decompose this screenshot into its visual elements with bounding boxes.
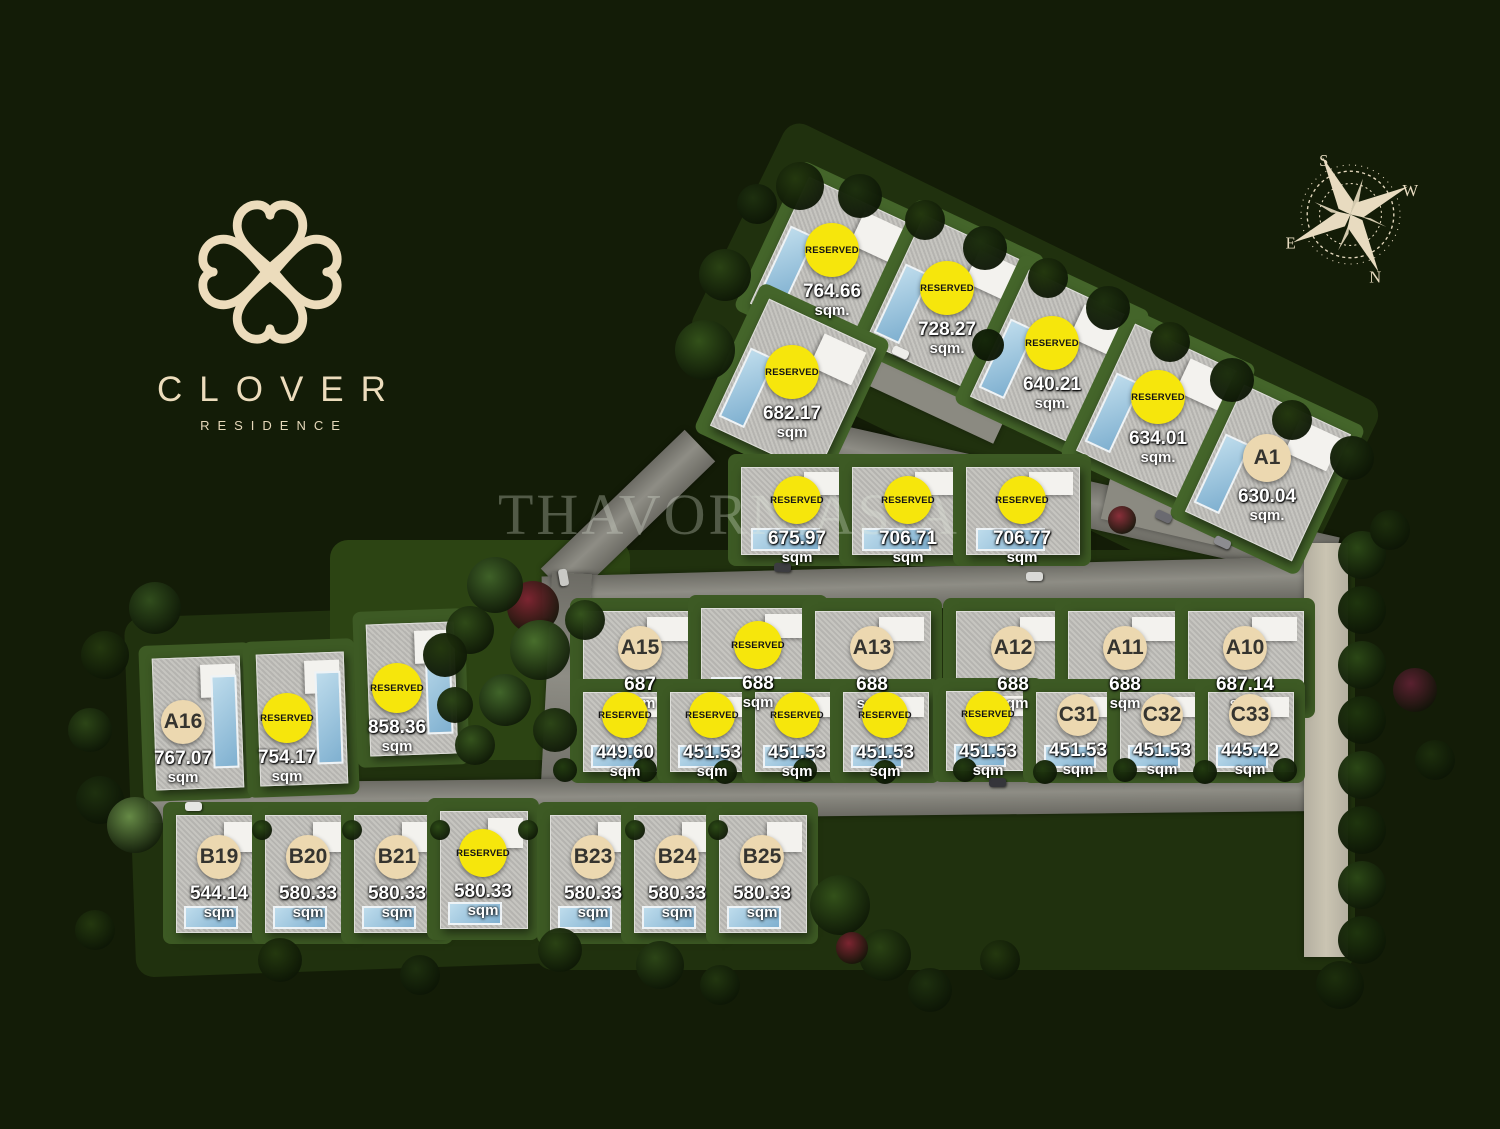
unit-badge: C32 — [1141, 694, 1183, 736]
unit-area-unit: sqm — [468, 902, 499, 919]
unit-marker-b23: B23580.33sqm — [564, 835, 622, 921]
unit-marker-b19: B19544.14sqm — [190, 835, 248, 921]
reserved-badge: RESERVED — [1131, 370, 1185, 424]
unit-area-unit: sqm — [578, 904, 609, 921]
unit-marker-b20: B20580.33sqm — [279, 835, 337, 921]
unit-marker-a16: A16767.07sqm — [154, 700, 212, 786]
unit-area: 449.60 — [596, 743, 654, 763]
unit-area-unit: sqm. — [1249, 507, 1284, 524]
logo: CLOVER RESIDENCE — [140, 192, 400, 433]
unit-badge: B19 — [197, 835, 241, 879]
unit-area: 688 — [742, 674, 774, 694]
unit-area-unit: sqm — [747, 904, 778, 921]
unit-area: 706.71 — [879, 529, 937, 549]
unit-marker-reserved-25: RESERVED858.36sqm — [368, 663, 426, 755]
unit-badge: B24 — [655, 835, 699, 879]
unit-area-unit: sqm — [293, 904, 324, 921]
unit-marker-reserved-3: RESERVED640.21sqm. — [1023, 316, 1081, 412]
reserved-badge: RESERVED — [262, 693, 312, 743]
unit-badge: A10 — [1223, 626, 1267, 670]
reserved-badge: RESERVED — [998, 476, 1046, 524]
unit-badge: A1 — [1243, 434, 1291, 482]
unit-marker-reserved-1: RESERVED728.27sqm. — [918, 261, 976, 357]
unit-marker-reserved-7: RESERVED706.71sqm — [879, 476, 937, 566]
unit-area-unit: sqm — [870, 763, 901, 780]
reserved-badge: RESERVED — [372, 663, 422, 713]
unit-area: 764.66 — [803, 282, 861, 302]
reserved-badge: RESERVED — [734, 621, 782, 669]
unit-area: 682.17 — [763, 404, 821, 424]
reserved-badge: RESERVED — [774, 692, 820, 738]
reserved-badge: RESERVED — [862, 692, 908, 738]
unit-area: 728.27 — [918, 320, 976, 340]
unit-marker-c31: C31451.53sqm — [1049, 694, 1107, 778]
unit-area: 580.33 — [454, 882, 512, 902]
unit-area-unit: sqm — [893, 549, 924, 566]
reserved-badge: RESERVED — [965, 691, 1011, 737]
unit-area-unit: sqm. — [814, 302, 849, 319]
unit-area: 451.53 — [1049, 741, 1107, 761]
unit-marker-b21: B21580.33sqm — [368, 835, 426, 921]
brand-subtitle: RESIDENCE — [140, 418, 400, 433]
unit-area-unit: sqm — [782, 763, 813, 780]
unit-area: 767.07 — [154, 749, 212, 769]
clover-logo-icon — [190, 192, 350, 352]
reserved-badge: RESERVED — [765, 345, 819, 399]
unit-area: 580.33 — [279, 884, 337, 904]
unit-area: 675.97 — [768, 529, 826, 549]
unit-area-unit: sqm — [777, 424, 808, 441]
compass-south-label: S — [1319, 151, 1328, 170]
unit-area: 451.53 — [959, 742, 1017, 762]
unit-area: 858.36 — [368, 718, 426, 738]
unit-area: 451.53 — [683, 743, 741, 763]
unit-badge: A13 — [850, 626, 894, 670]
unit-area-unit: sqm — [382, 738, 413, 755]
unit-area-unit: sqm — [1063, 761, 1094, 778]
unit-area-unit: sqm — [204, 904, 235, 921]
unit-area-unit: sqm. — [1140, 449, 1175, 466]
unit-badge: A15 — [618, 626, 662, 670]
reserved-badge: RESERVED — [1025, 316, 1079, 370]
unit-area: 580.33 — [733, 884, 791, 904]
reserved-badge: RESERVED — [602, 692, 648, 738]
unit-marker-reserved-29: RESERVED580.33sqm — [454, 829, 512, 919]
unit-area: 580.33 — [648, 884, 706, 904]
unit-area: 706.77 — [993, 529, 1051, 549]
unit-area-unit: sqm — [168, 769, 199, 786]
unit-marker-reserved-2: RESERVED682.17sqm — [763, 345, 821, 441]
unit-area-unit: sqm — [610, 763, 641, 780]
reserved-badge: RESERVED — [773, 476, 821, 524]
compass-west-label: W — [1403, 181, 1419, 200]
reserved-badge: RESERVED — [689, 692, 735, 738]
unit-marker-reserved-0: RESERVED764.66sqm. — [803, 223, 861, 319]
unit-area-unit: sqm. — [1034, 395, 1069, 412]
unit-marker-b25: B25580.33sqm — [733, 835, 791, 921]
unit-area: 451.53 — [768, 743, 826, 763]
unit-badge: B23 — [571, 835, 615, 879]
unit-badge: C31 — [1057, 694, 1099, 736]
unit-marker-reserved-19: RESERVED451.53sqm — [959, 691, 1017, 779]
unit-marker-reserved-24: RESERVED754.17sqm — [258, 693, 316, 785]
unit-marker-b24: B24580.33sqm — [648, 835, 706, 921]
unit-area-unit: sqm — [662, 904, 693, 921]
brand-name: CLOVER — [140, 370, 400, 410]
unit-badge: C33 — [1229, 694, 1271, 736]
reserved-badge: RESERVED — [920, 261, 974, 315]
compass: S W N E — [1268, 132, 1433, 302]
unit-marker-reserved-4: RESERVED634.01sqm. — [1129, 370, 1187, 466]
unit-area-unit: sqm — [382, 904, 413, 921]
unit-badge: B21 — [375, 835, 419, 879]
unit-area: 580.33 — [368, 884, 426, 904]
reserved-badge: RESERVED — [884, 476, 932, 524]
unit-area-unit: sqm. — [929, 340, 964, 357]
unit-marker-a1: A1630.04sqm. — [1238, 434, 1296, 524]
unit-area: 445.42 — [1221, 741, 1279, 761]
unit-area: 580.33 — [564, 884, 622, 904]
reserved-badge: RESERVED — [459, 829, 507, 877]
unit-badge: B20 — [286, 835, 330, 879]
unit-area-unit: sqm — [1235, 761, 1266, 778]
unit-area: 754.17 — [258, 748, 316, 768]
unit-area: 451.53 — [856, 743, 914, 763]
unit-marker-reserved-6: RESERVED675.97sqm — [768, 476, 826, 566]
unit-area: 687.14 — [1216, 675, 1274, 695]
unit-area: 634.01 — [1129, 429, 1187, 449]
site-plan-image: THAVORN.ASIA RESERVED764.66sqm.RESERVED7… — [0, 0, 1500, 1129]
unit-marker-reserved-18: RESERVED451.53sqm — [856, 692, 914, 780]
unit-area: 630.04 — [1238, 487, 1296, 507]
unit-marker-c33: C33445.42sqm — [1221, 694, 1279, 778]
compass-east-label: E — [1286, 234, 1296, 253]
unit-badge: A16 — [161, 700, 205, 744]
unit-area-unit: sqm — [782, 549, 813, 566]
unit-marker-reserved-8: RESERVED706.77sqm — [993, 476, 1051, 566]
unit-badge: A11 — [1103, 626, 1147, 670]
unit-area-unit: sqm — [1147, 761, 1178, 778]
compass-north-label: N — [1369, 268, 1381, 287]
unit-area-unit: sqm — [697, 763, 728, 780]
unit-marker-reserved-16: RESERVED451.53sqm — [683, 692, 741, 780]
unit-badge: A12 — [991, 626, 1035, 670]
unit-area-unit: sqm — [1007, 549, 1038, 566]
reserved-badge: RESERVED — [805, 223, 859, 277]
unit-area-unit: sqm — [272, 768, 303, 785]
unit-marker-reserved-17: RESERVED451.53sqm — [768, 692, 826, 780]
unit-area-unit: sqm — [973, 762, 1004, 779]
unit-area: 688 — [1109, 675, 1141, 695]
unit-area: 640.21 — [1023, 375, 1081, 395]
compass-icon: S W N E — [1268, 132, 1433, 297]
unit-area: 544.14 — [190, 884, 248, 904]
unit-area: 451.53 — [1133, 741, 1191, 761]
unit-badge: B25 — [740, 835, 784, 879]
unit-marker-reserved-15: RESERVED449.60sqm — [596, 692, 654, 780]
unit-marker-c32: C32451.53sqm — [1133, 694, 1191, 778]
